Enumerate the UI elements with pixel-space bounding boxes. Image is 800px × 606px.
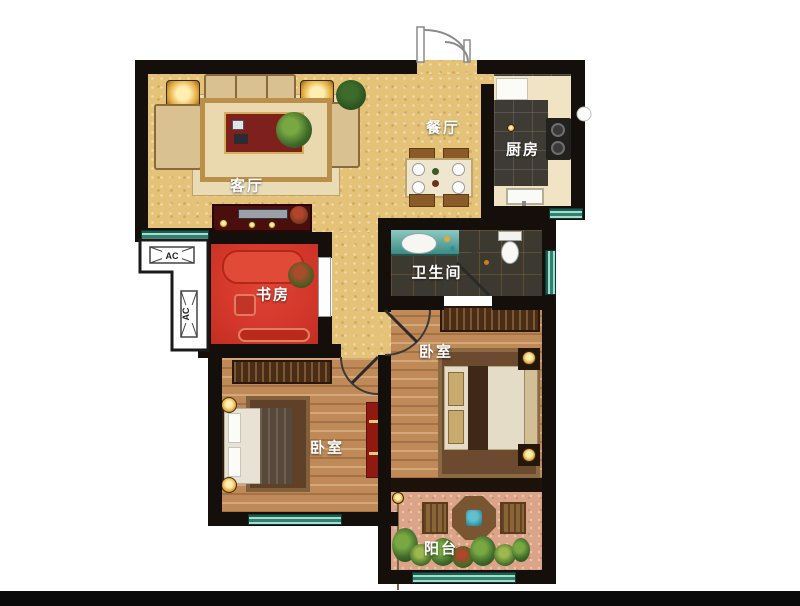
- bedroom-left-label: 卧室: [310, 437, 344, 458]
- coffee-table-book: [234, 134, 248, 144]
- wall-bathroom-bottom-right: [492, 296, 556, 310]
- cabinet-decor-mid2: [268, 221, 276, 229]
- study-table: [234, 294, 256, 316]
- cabinet-decor-left: [219, 219, 228, 228]
- dish-center-1: [432, 168, 439, 175]
- wall-kitchen-left: [481, 84, 494, 218]
- vanity-decor-2: [450, 246, 455, 251]
- wall-study-left: [198, 232, 211, 358]
- vanity-decor-1: [444, 236, 450, 242]
- study-flower: [288, 262, 314, 288]
- wall-study-top: [196, 232, 332, 244]
- footer-band: [0, 591, 800, 606]
- plate-1: [412, 163, 425, 176]
- wall-bathroom-top: [378, 218, 556, 230]
- balcony-chair-right: [500, 502, 526, 534]
- balcony-label: 阳台: [424, 538, 458, 559]
- wall-balcony-left: [378, 478, 391, 584]
- wall-bathroom-left: [378, 218, 391, 312]
- nightstand-lamp-top: [522, 351, 536, 365]
- bed-right-pillow-1: [448, 372, 464, 406]
- burner-2: [551, 141, 565, 155]
- entry-door-arc-small: [445, 42, 468, 62]
- burner-1: [551, 123, 565, 137]
- balcony-table-decor: [466, 510, 482, 526]
- study-console: [238, 328, 310, 342]
- bedroom-right-label: 卧室: [419, 341, 453, 362]
- toilet-tank: [498, 231, 522, 241]
- dining-chair-bottom-left: [409, 194, 435, 207]
- bathroom-door-knob: [484, 260, 489, 265]
- wall-study-right-upper: [318, 232, 332, 258]
- floorplan-canvas: AC AC 客厅 餐厅 厨房 卫生间 书房 卧室 卧室 阳台: [0, 0, 800, 606]
- fridge: [496, 78, 528, 100]
- bed-left-lamp-top: [221, 397, 237, 413]
- balcony-plant-5: [470, 536, 496, 566]
- plate-4: [452, 181, 465, 194]
- bed-right-pillow-2: [448, 410, 464, 444]
- wall-bedroom-balcony: [378, 478, 556, 492]
- wall-top-right: [477, 60, 585, 74]
- ac-label-top: AC: [166, 251, 179, 261]
- kitchen-decor-dot: [507, 124, 515, 132]
- tv-screen: [238, 209, 288, 219]
- toilet-bowl: [501, 241, 519, 264]
- entry-threshold: [417, 60, 477, 74]
- wall-balcony-right: [542, 478, 556, 584]
- wall-bathroom-bottom-left: [391, 296, 444, 310]
- dining-chair-bottom-right: [443, 194, 469, 207]
- bed-left-pillow-2: [228, 447, 241, 477]
- dining-room-label: 餐厅: [426, 117, 460, 138]
- ac-label-side: AC: [181, 307, 191, 320]
- bed-left-duvet: [260, 408, 292, 484]
- bathroom-basin: [401, 233, 437, 254]
- wall-top-left: [135, 60, 417, 74]
- table-plant: [276, 112, 312, 148]
- window-bedroom-south: [248, 514, 342, 525]
- plate-3: [412, 181, 425, 194]
- entry-door-leaf-large: [417, 27, 424, 62]
- bed-left-pillow-1: [228, 413, 241, 443]
- balcony-lamp: [392, 492, 404, 504]
- kitchen-label: 厨房: [506, 139, 540, 160]
- ac-symbol-top: AC: [150, 247, 194, 263]
- wall-bedroom-left: [208, 352, 222, 526]
- study-label: 书房: [256, 284, 290, 305]
- ac-symbol-side: AC: [181, 291, 197, 337]
- window-living-west: [141, 230, 209, 241]
- window-kitchen-south: [549, 208, 583, 219]
- wall-left: [135, 60, 148, 232]
- balcony-plant-7: [512, 538, 530, 562]
- nightstand-lamp-bottom: [522, 448, 536, 462]
- coffee-table-item: [232, 120, 244, 130]
- bathroom-label: 卫生间: [411, 262, 462, 283]
- entry-door-arc-large: [424, 30, 468, 62]
- study-door-leaf: [318, 257, 331, 317]
- dish-center-2: [432, 180, 439, 187]
- cabinet-plant: [290, 206, 308, 224]
- wall-right-kitchen: [571, 60, 585, 218]
- corner-plant: [336, 80, 366, 110]
- cabinet-decor-mid: [248, 221, 256, 229]
- wardrobe-left-bedroom: [232, 360, 332, 384]
- bed-right-runner: [468, 366, 488, 450]
- plate-2: [452, 163, 465, 176]
- armchair-left: [154, 104, 202, 170]
- entry-door-leaf-small: [464, 40, 470, 62]
- window-balcony-south: [412, 572, 516, 583]
- window-bathroom-east: [545, 250, 556, 295]
- balcony-chair-left: [422, 502, 448, 534]
- bed-left-lamp-bottom: [221, 477, 237, 493]
- living-room-label: 客厅: [230, 175, 264, 196]
- bed-right-headboard: [524, 362, 538, 454]
